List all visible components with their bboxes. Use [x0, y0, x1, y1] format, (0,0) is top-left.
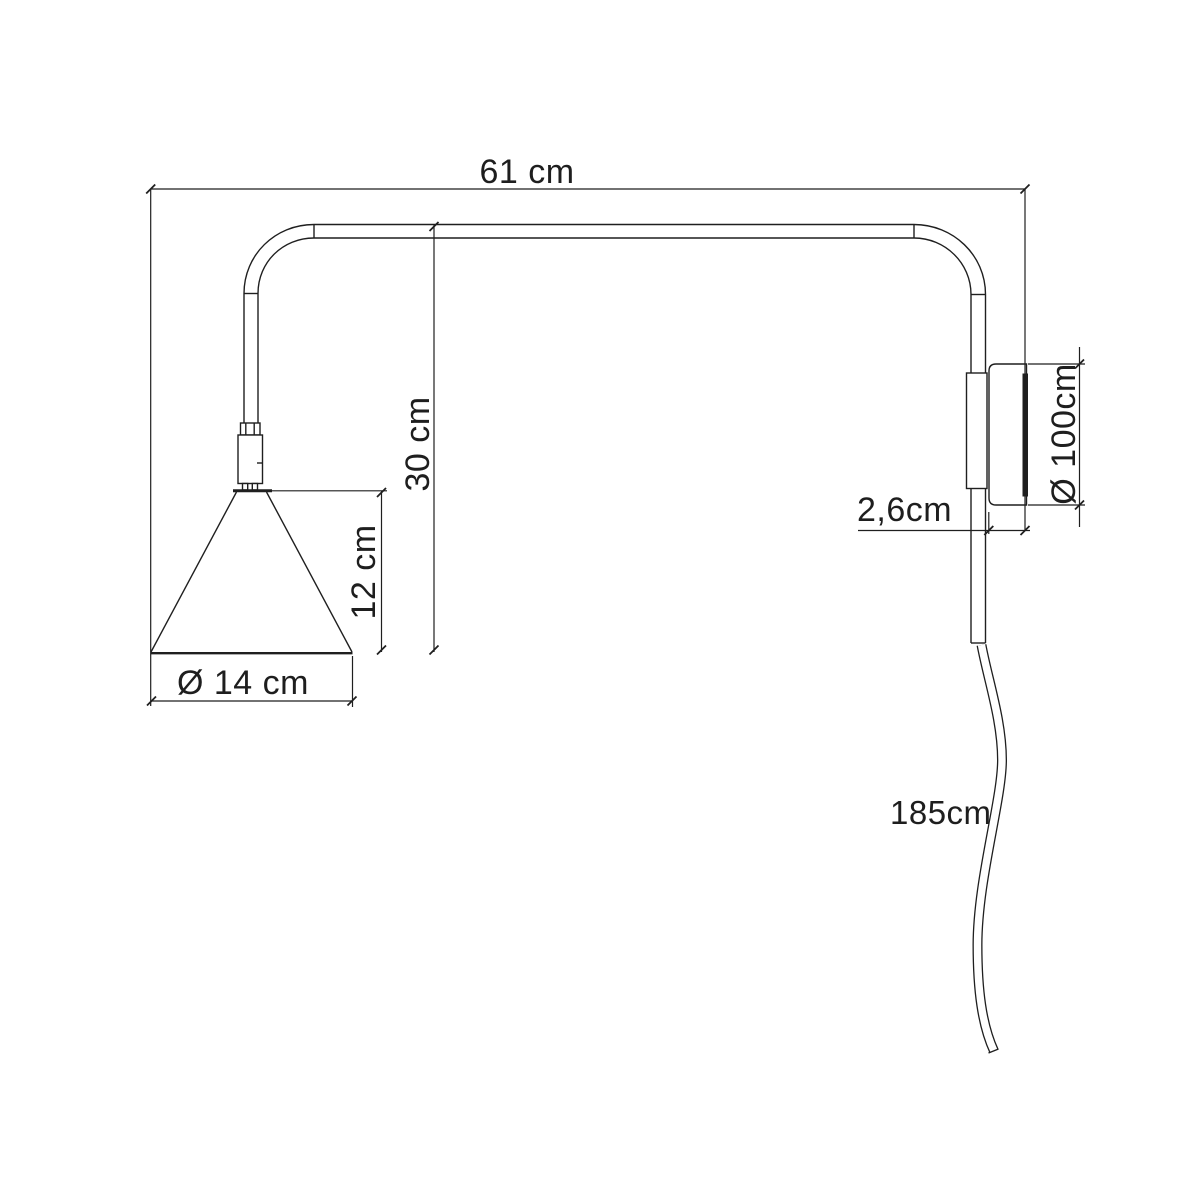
- power-cable: [978, 645, 1003, 1053]
- dimension-14cm: Ø 14 cm: [147, 656, 357, 707]
- socket-body: [238, 435, 263, 484]
- dim-26-label: 2,6cm: [857, 491, 952, 529]
- shade-right-side: [267, 492, 353, 652]
- dimension-30cm: 30 cm: [399, 222, 439, 655]
- dim-30-label: 30 cm: [399, 396, 437, 491]
- wall-mount: [967, 364, 1029, 505]
- left-elbow-inner: [258, 238, 314, 294]
- cable-curve-fill: [978, 645, 1003, 1051]
- dim-100-label: Ø 100cm: [1045, 363, 1083, 504]
- socket-foot-right: [252, 484, 257, 491]
- shade-left-side: [151, 492, 237, 652]
- socket-nut: [241, 423, 261, 435]
- dim-14-label: Ø 14 cm: [177, 664, 309, 702]
- right-elbow-outer: [914, 225, 986, 295]
- dim-12-label: 12 cm: [345, 524, 383, 619]
- left-elbow-outer: [244, 225, 314, 294]
- lamp-arm: [244, 225, 986, 424]
- lamp-dimension-drawing: 61 cm 30 cm 12 cm Ø 14 cm 2,6cm: [0, 0, 1200, 1200]
- dimension-61cm: 61 cm: [146, 153, 1029, 706]
- right-elbow-inner: [914, 238, 971, 295]
- dimension-12cm: 12 cm: [272, 488, 387, 655]
- dimension-100cm: Ø 100cm: [1028, 347, 1085, 527]
- wall-plate: [989, 364, 1027, 505]
- lamp-socket: [238, 423, 263, 490]
- cable-length-label: 185cm: [890, 794, 992, 831]
- diagram-canvas: 61 cm 30 cm 12 cm Ø 14 cm 2,6cm: [0, 0, 1200, 1200]
- socket-foot-left: [243, 484, 248, 491]
- dim-61-label: 61 cm: [479, 153, 574, 191]
- mount-bracket: [967, 373, 988, 489]
- lamp-shade: [151, 491, 353, 653]
